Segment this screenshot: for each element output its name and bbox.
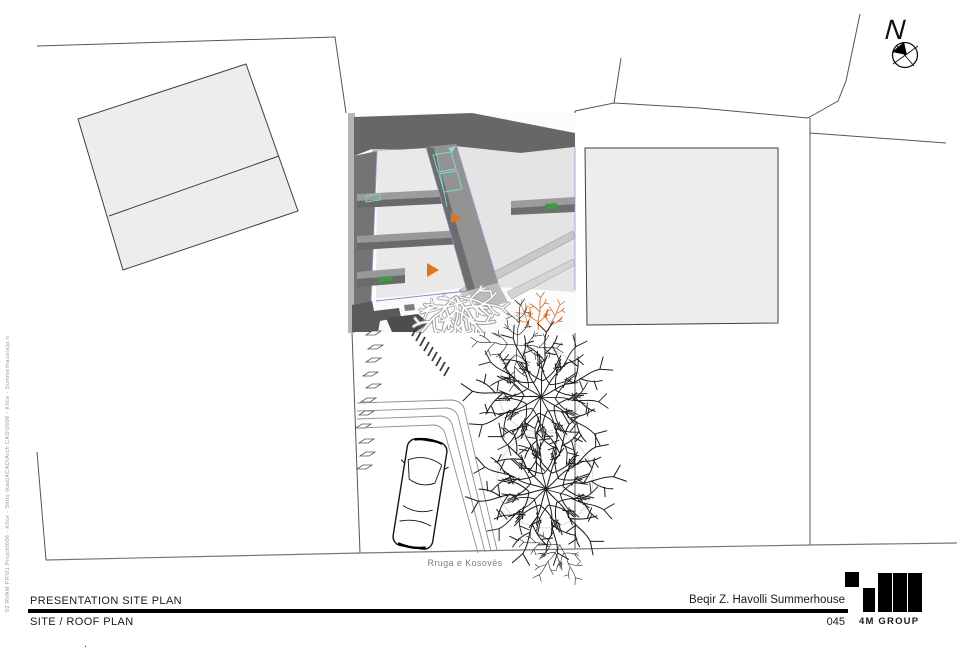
titleblock-divider-line	[28, 609, 848, 613]
car	[388, 436, 452, 551]
big-tree	[461, 299, 629, 588]
street-label: Rruga e Kosovës	[405, 558, 525, 568]
shrub-marks	[356, 331, 383, 469]
stray-mark: .	[84, 638, 87, 650]
margin-file-path-note: 02 RVAM PR\01 Projct0606 - Kllce - Shtiq…	[5, 172, 11, 612]
north-label: N	[884, 14, 906, 46]
site-plan-sheet: N Rruga e Kosovës 02 RVAM PR\01 Projct06…	[0, 0, 959, 660]
project-name: Beqir Z. Havolli Summerhouse	[689, 594, 845, 606]
sheet-number: 045	[827, 616, 845, 628]
presentation-title: PRESENTATION SITE PLAN	[30, 595, 182, 607]
logo-bar	[878, 573, 892, 612]
right-plot-building	[585, 148, 778, 325]
logo-bar	[863, 588, 875, 612]
logo-bar	[893, 573, 907, 612]
hatch-marks	[412, 327, 449, 376]
logo-bar	[845, 572, 859, 587]
company-name: 4M GROUP	[859, 616, 929, 627]
4m-group-logo: 4M GROUP	[845, 572, 925, 628]
left-plot-building	[78, 64, 298, 270]
logo-bar	[908, 573, 922, 612]
sheet-subtitle: SITE / ROOF PLAN	[30, 616, 134, 628]
roof-render	[348, 113, 576, 358]
